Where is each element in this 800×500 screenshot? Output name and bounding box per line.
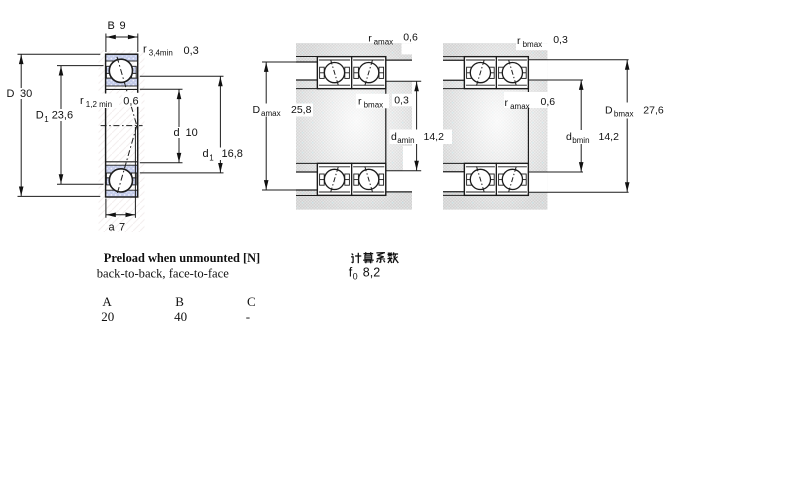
svg-text:amin: amin <box>397 136 414 145</box>
svg-text:D: D <box>605 105 613 117</box>
svg-text:-: - <box>246 309 250 324</box>
svg-text:bmax: bmax <box>364 101 384 110</box>
svg-text:r: r <box>517 35 521 47</box>
svg-text:C: C <box>247 294 256 309</box>
svg-text:amax: amax <box>510 102 530 111</box>
svg-text:14,2: 14,2 <box>424 131 445 143</box>
svg-text:30: 30 <box>20 88 32 100</box>
svg-text:7: 7 <box>119 222 125 234</box>
svg-text:1: 1 <box>44 115 49 124</box>
svg-text:r: r <box>368 33 372 45</box>
svg-text:0,6: 0,6 <box>403 31 418 43</box>
svg-text:r: r <box>80 95 84 107</box>
svg-text:r: r <box>505 97 509 109</box>
svg-text:9: 9 <box>120 20 126 32</box>
svg-text:d: d <box>391 131 397 143</box>
svg-text:bmax: bmax <box>614 110 634 119</box>
svg-text:B: B <box>108 20 115 32</box>
svg-text:27,6: 27,6 <box>643 105 664 117</box>
svg-text:0: 0 <box>353 271 358 281</box>
svg-text:20: 20 <box>101 309 114 324</box>
svg-text:25,8: 25,8 <box>291 104 312 116</box>
svg-text:B: B <box>175 294 184 309</box>
svg-text:bmin: bmin <box>572 136 589 145</box>
svg-text:r: r <box>143 44 147 56</box>
svg-text:16,8: 16,8 <box>222 148 243 160</box>
svg-text:amax: amax <box>374 38 394 47</box>
svg-text:bmax: bmax <box>523 40 543 49</box>
svg-text:d: d <box>203 148 209 160</box>
svg-text:0,3: 0,3 <box>394 95 409 107</box>
svg-text:back-to-back, face-to-face: back-to-back, face-to-face <box>97 267 230 281</box>
svg-text:40: 40 <box>174 309 187 324</box>
svg-text:Preload when unmounted [N]: Preload when unmounted [N] <box>104 251 260 265</box>
svg-text:D: D <box>36 110 44 122</box>
svg-text:8,2: 8,2 <box>363 266 380 280</box>
svg-text:d: d <box>174 127 180 139</box>
svg-text:A: A <box>102 294 112 309</box>
svg-text:d: d <box>566 131 572 143</box>
svg-text:23,6: 23,6 <box>52 110 73 122</box>
svg-text:3,4min: 3,4min <box>149 49 173 58</box>
svg-text:0,6: 0,6 <box>541 96 556 108</box>
svg-text:a: a <box>109 222 116 234</box>
svg-text:D: D <box>253 104 261 116</box>
svg-text:14,2: 14,2 <box>599 131 620 143</box>
svg-text:0,3: 0,3 <box>553 34 568 46</box>
svg-text:1,2 min: 1,2 min <box>86 100 112 109</box>
svg-text:10: 10 <box>186 127 198 139</box>
svg-text:r: r <box>358 96 362 108</box>
svg-text:0,6: 0,6 <box>123 95 138 107</box>
svg-text:amax: amax <box>261 109 281 118</box>
svg-text:1: 1 <box>209 153 214 162</box>
svg-text:0,3: 0,3 <box>184 45 199 57</box>
svg-text:D: D <box>7 88 15 100</box>
